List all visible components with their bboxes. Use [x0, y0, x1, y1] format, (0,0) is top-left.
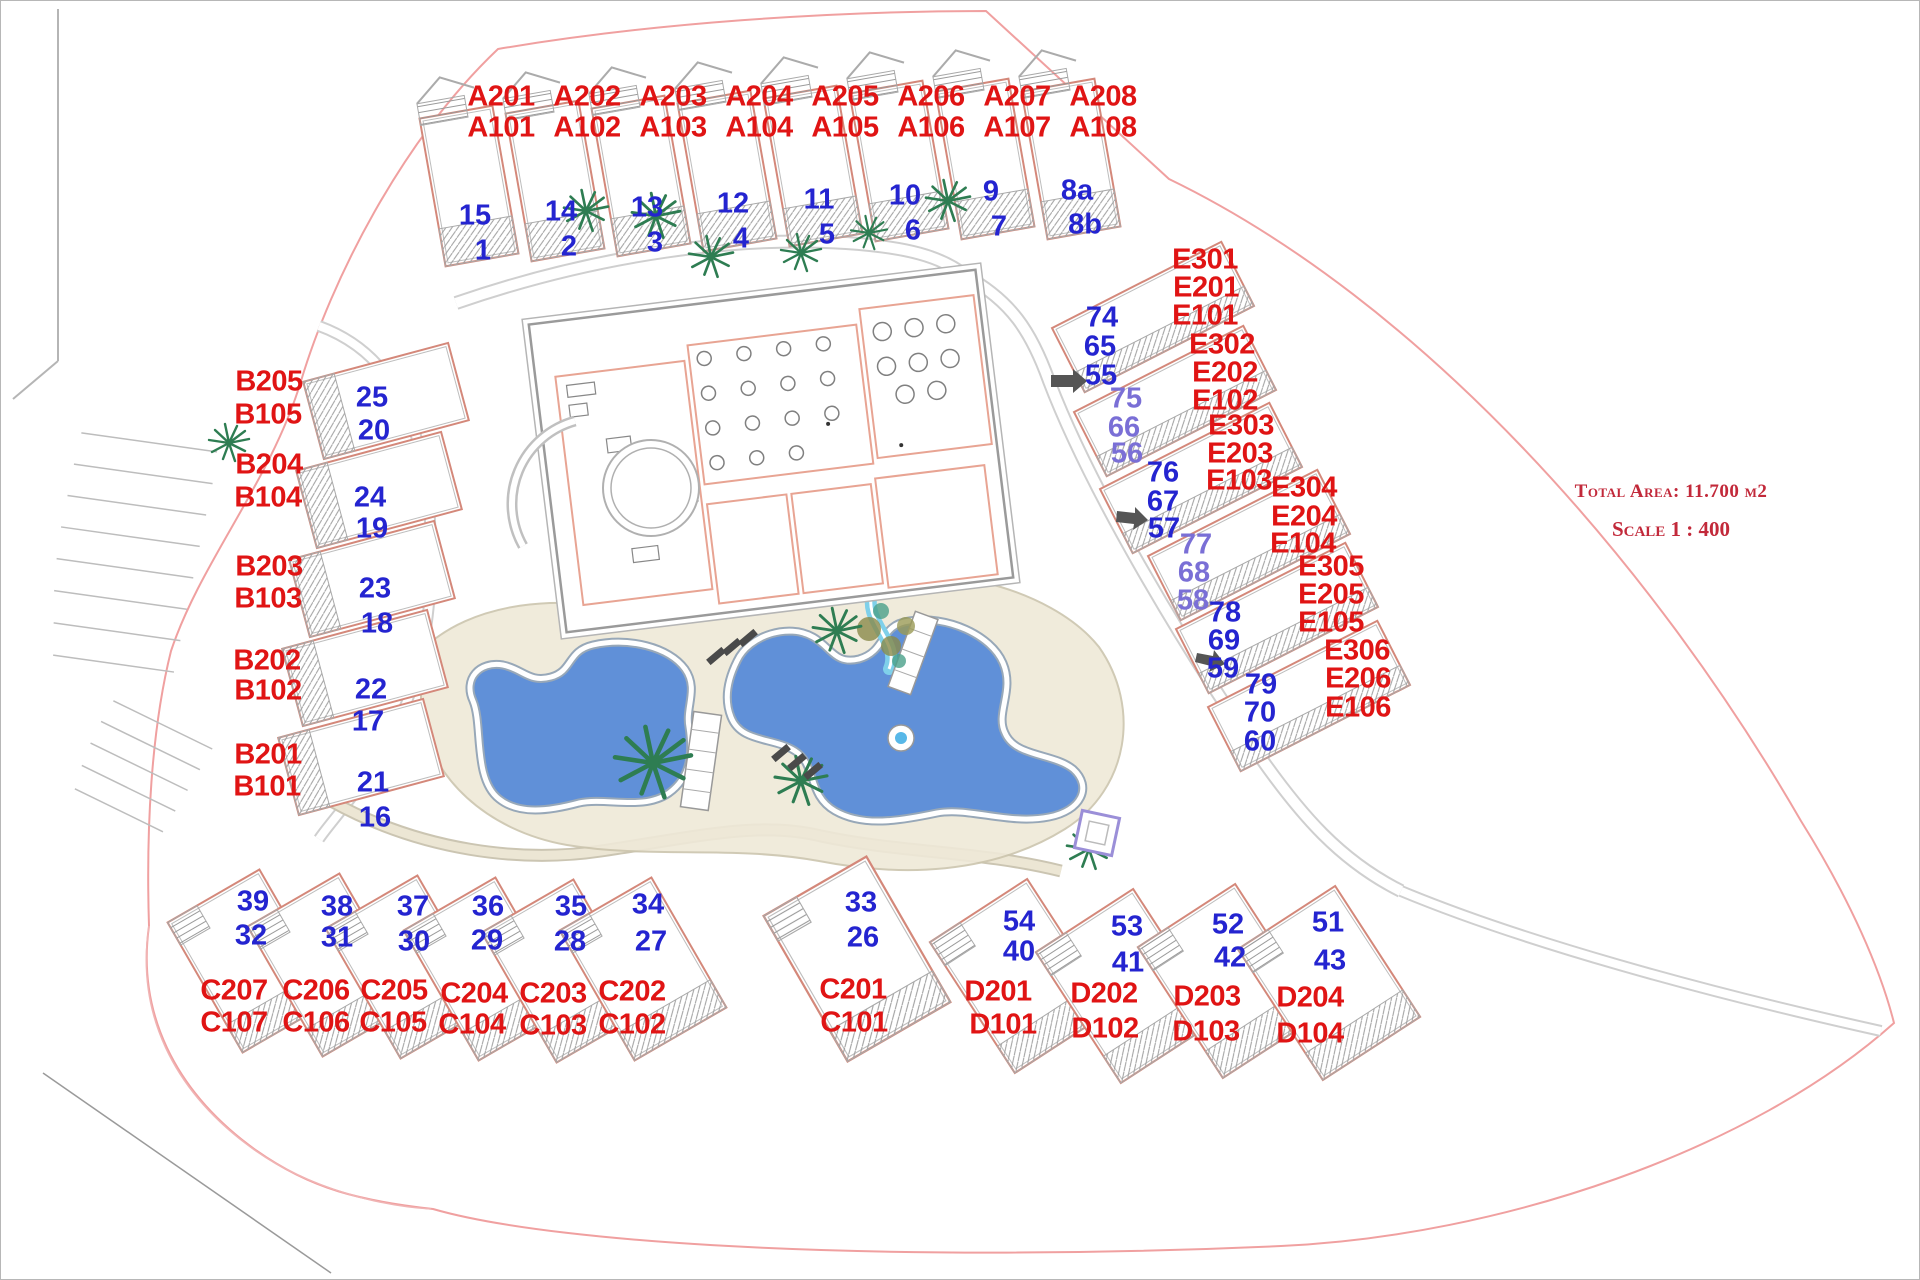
plot-number-59: 59 [1207, 655, 1239, 684]
plot-number-56: 56 [1111, 440, 1143, 469]
unit-label-B105: B105 [234, 401, 301, 430]
unit-label-B203: B203 [235, 553, 302, 582]
plot-number-75: 75 [1110, 385, 1142, 414]
unit-label-E106: E106 [1325, 694, 1391, 723]
unit-label-B103: B103 [234, 585, 301, 614]
plot-number-40: 40 [1003, 938, 1035, 967]
unit-label-C107: C107 [200, 1009, 267, 1038]
plot-number-11: 11 [804, 186, 835, 215]
plot-number-15: 15 [459, 202, 491, 231]
unit-label-C207: C207 [200, 977, 267, 1006]
unit-label-C204: C204 [440, 980, 507, 1009]
unit-label-E103: E103 [1206, 467, 1272, 496]
plot-number-68: 68 [1178, 559, 1210, 588]
unit-label-E205: E205 [1298, 581, 1364, 610]
unit-label-C205: C205 [360, 977, 427, 1006]
unit-label-C106: C106 [282, 1009, 349, 1038]
plot-number-29: 29 [471, 927, 503, 956]
plot-number-25: 25 [356, 384, 388, 413]
plot-number-74: 74 [1086, 304, 1118, 333]
plot-number-7: 7 [991, 213, 1007, 242]
unit-label-C101: C101 [820, 1009, 887, 1038]
plot-number-6: 6 [905, 217, 921, 246]
plot-number-14: 14 [545, 198, 577, 227]
plot-number-19: 19 [356, 515, 388, 544]
unit-label-C203: C203 [519, 980, 586, 1009]
unit-label-C102: C102 [598, 1011, 665, 1040]
unit-label-A102: A102 [553, 114, 620, 143]
plot-number-17: 17 [352, 708, 384, 737]
unit-label-A108: A108 [1069, 114, 1136, 143]
unit-label-B204: B204 [235, 451, 302, 480]
plot-number-8a: 8a [1061, 177, 1093, 206]
site-plan-canvas: A201A202A203A204A205A206A207A208A101A102… [0, 0, 1920, 1280]
unit-label-B201: B201 [234, 741, 301, 770]
plot-number-27: 27 [635, 928, 667, 957]
plot-number-65: 65 [1084, 333, 1116, 362]
plot-number-34: 34 [632, 891, 664, 920]
plot-number-76: 76 [1147, 459, 1179, 488]
unit-label-A103: A103 [639, 114, 706, 143]
unit-label-B104: B104 [234, 484, 301, 513]
plot-number-53: 53 [1111, 913, 1143, 942]
plot-number-12: 12 [717, 190, 749, 219]
plot-number-5: 5 [819, 221, 835, 250]
unit-label-E302: E302 [1189, 331, 1255, 360]
unit-label-E101: E101 [1172, 302, 1238, 331]
plot-number-39: 39 [237, 888, 269, 917]
unit-label-A106: A106 [897, 114, 964, 143]
unit-label-E201: E201 [1173, 274, 1239, 303]
plot-number-79: 79 [1245, 671, 1277, 700]
plot-number-43: 43 [1314, 947, 1346, 976]
unit-label-E301: E301 [1172, 246, 1238, 275]
unit-label-D103: D103 [1172, 1018, 1239, 1047]
plot-number-31: 31 [321, 924, 353, 953]
plot-number-10: 10 [889, 182, 921, 211]
plot-number-22: 22 [355, 676, 387, 705]
plot-number-52: 52 [1212, 911, 1244, 940]
plot-number-54: 54 [1003, 908, 1035, 937]
unit-label-D102: D102 [1071, 1015, 1138, 1044]
plot-number-21: 21 [357, 769, 389, 798]
unit-label-E304: E304 [1271, 474, 1337, 503]
unit-label-E202: E202 [1192, 359, 1258, 388]
plot-number-77: 77 [1180, 531, 1212, 560]
plot-number-69: 69 [1208, 627, 1240, 656]
scale-text: Scale 1 : 400 [1561, 517, 1781, 542]
unit-label-A105: A105 [811, 114, 878, 143]
plot-number-32: 32 [235, 922, 267, 951]
plot-number-13: 13 [631, 194, 663, 223]
unit-label-C105: C105 [359, 1009, 426, 1038]
plot-number-20: 20 [358, 417, 390, 446]
unit-label-A104: A104 [725, 114, 792, 143]
unit-label-D101: D101 [969, 1011, 1036, 1040]
unit-label-E306: E306 [1324, 637, 1390, 666]
unit-label-A206: A206 [897, 83, 964, 112]
plot-number-28: 28 [554, 928, 586, 957]
unit-label-E305: E305 [1298, 553, 1364, 582]
unit-label-A202: A202 [553, 83, 620, 112]
plot-number-37: 37 [397, 893, 429, 922]
unit-label-D202: D202 [1070, 980, 1137, 1009]
unit-label-D104: D104 [1276, 1020, 1343, 1049]
plot-number-42: 42 [1214, 944, 1246, 973]
unit-label-A107: A107 [983, 114, 1050, 143]
unit-label-D204: D204 [1276, 984, 1343, 1013]
plot-number-41: 41 [1112, 949, 1144, 978]
plot-number-36: 36 [472, 893, 504, 922]
total-area-text: Total Area: 11.700 m2 [1561, 481, 1781, 503]
unit-label-D203: D203 [1173, 983, 1240, 1012]
label-layer: A201A202A203A204A205A206A207A208A101A102… [1, 1, 1919, 1279]
plot-number-23: 23 [359, 575, 391, 604]
unit-label-B205: B205 [235, 368, 302, 397]
plot-number-9: 9 [983, 178, 999, 207]
plot-number-60: 60 [1244, 728, 1276, 757]
plot-number-8b: 8b [1068, 211, 1102, 240]
plot-number-18: 18 [361, 610, 393, 639]
unit-label-B102: B102 [234, 677, 301, 706]
plot-number-4: 4 [733, 225, 749, 254]
unit-label-A205: A205 [811, 83, 878, 112]
unit-label-B202: B202 [233, 647, 300, 676]
unit-label-C103: C103 [519, 1012, 586, 1041]
unit-label-B101: B101 [233, 773, 300, 802]
plot-number-2: 2 [561, 233, 577, 262]
plot-number-35: 35 [555, 893, 587, 922]
unit-label-A207: A207 [983, 83, 1050, 112]
plan-legend: Total Area: 11.700 m2 Scale 1 : 400 [1561, 481, 1781, 542]
unit-label-C202: C202 [598, 978, 665, 1007]
plot-number-58: 58 [1177, 587, 1209, 616]
plot-number-24: 24 [354, 484, 386, 513]
unit-label-E206: E206 [1325, 665, 1391, 694]
plot-number-26: 26 [847, 924, 879, 953]
plot-number-57: 57 [1148, 515, 1180, 544]
plot-number-33: 33 [845, 889, 877, 918]
unit-label-C206: C206 [282, 977, 349, 1006]
unit-label-C201: C201 [819, 976, 886, 1005]
plot-number-78: 78 [1209, 599, 1241, 628]
plot-number-51: 51 [1312, 909, 1344, 938]
unit-label-C104: C104 [438, 1011, 505, 1040]
plot-number-3: 3 [647, 229, 663, 258]
plot-number-38: 38 [321, 893, 353, 922]
unit-label-A201: A201 [467, 83, 534, 112]
unit-label-A101: A101 [467, 114, 534, 143]
unit-label-A204: A204 [725, 83, 792, 112]
plot-number-16: 16 [359, 804, 391, 833]
plot-number-1: 1 [475, 237, 491, 266]
unit-label-D201: D201 [964, 978, 1031, 1007]
plot-number-30: 30 [398, 928, 430, 957]
unit-label-E303: E303 [1208, 412, 1274, 441]
unit-label-A203: A203 [639, 83, 706, 112]
unit-label-E105: E105 [1298, 609, 1364, 638]
unit-label-A208: A208 [1069, 83, 1136, 112]
plot-number-70: 70 [1244, 699, 1276, 728]
